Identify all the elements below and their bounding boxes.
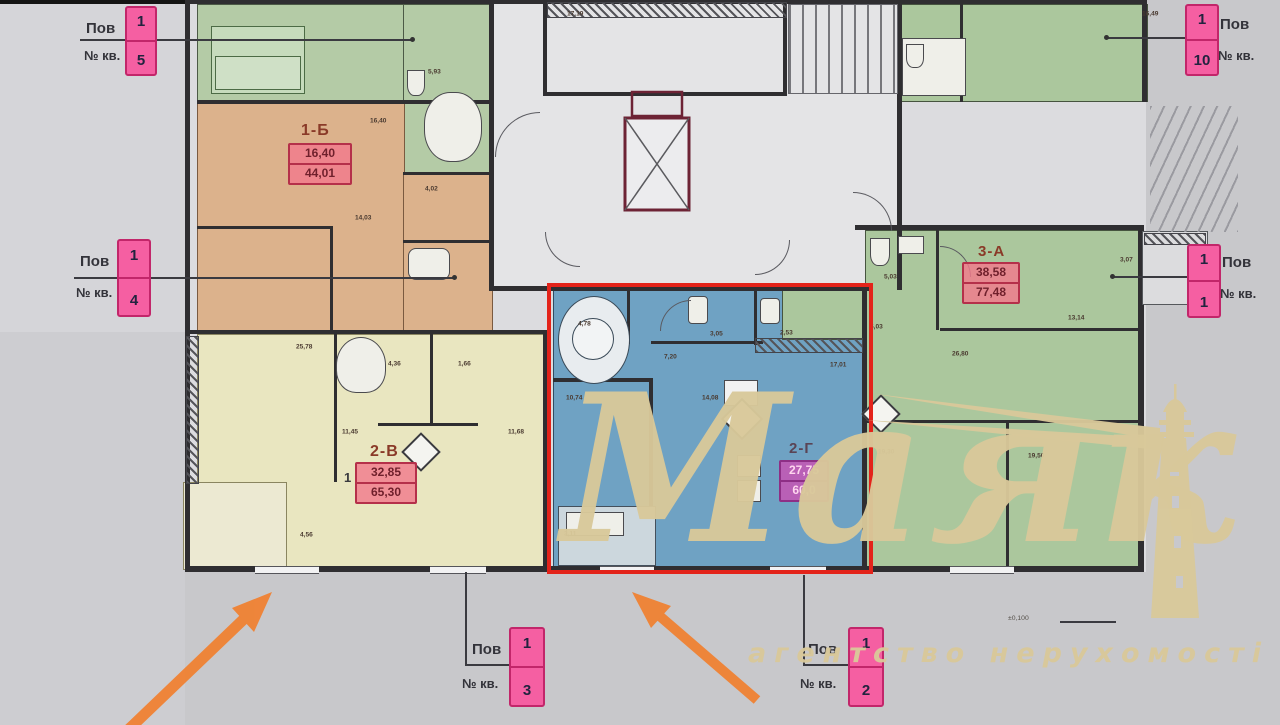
annotation-arrows [0,0,1280,725]
floorplan-scan: 17,1916,495,9316,404,0214,0325,784,361,6… [0,0,1280,725]
